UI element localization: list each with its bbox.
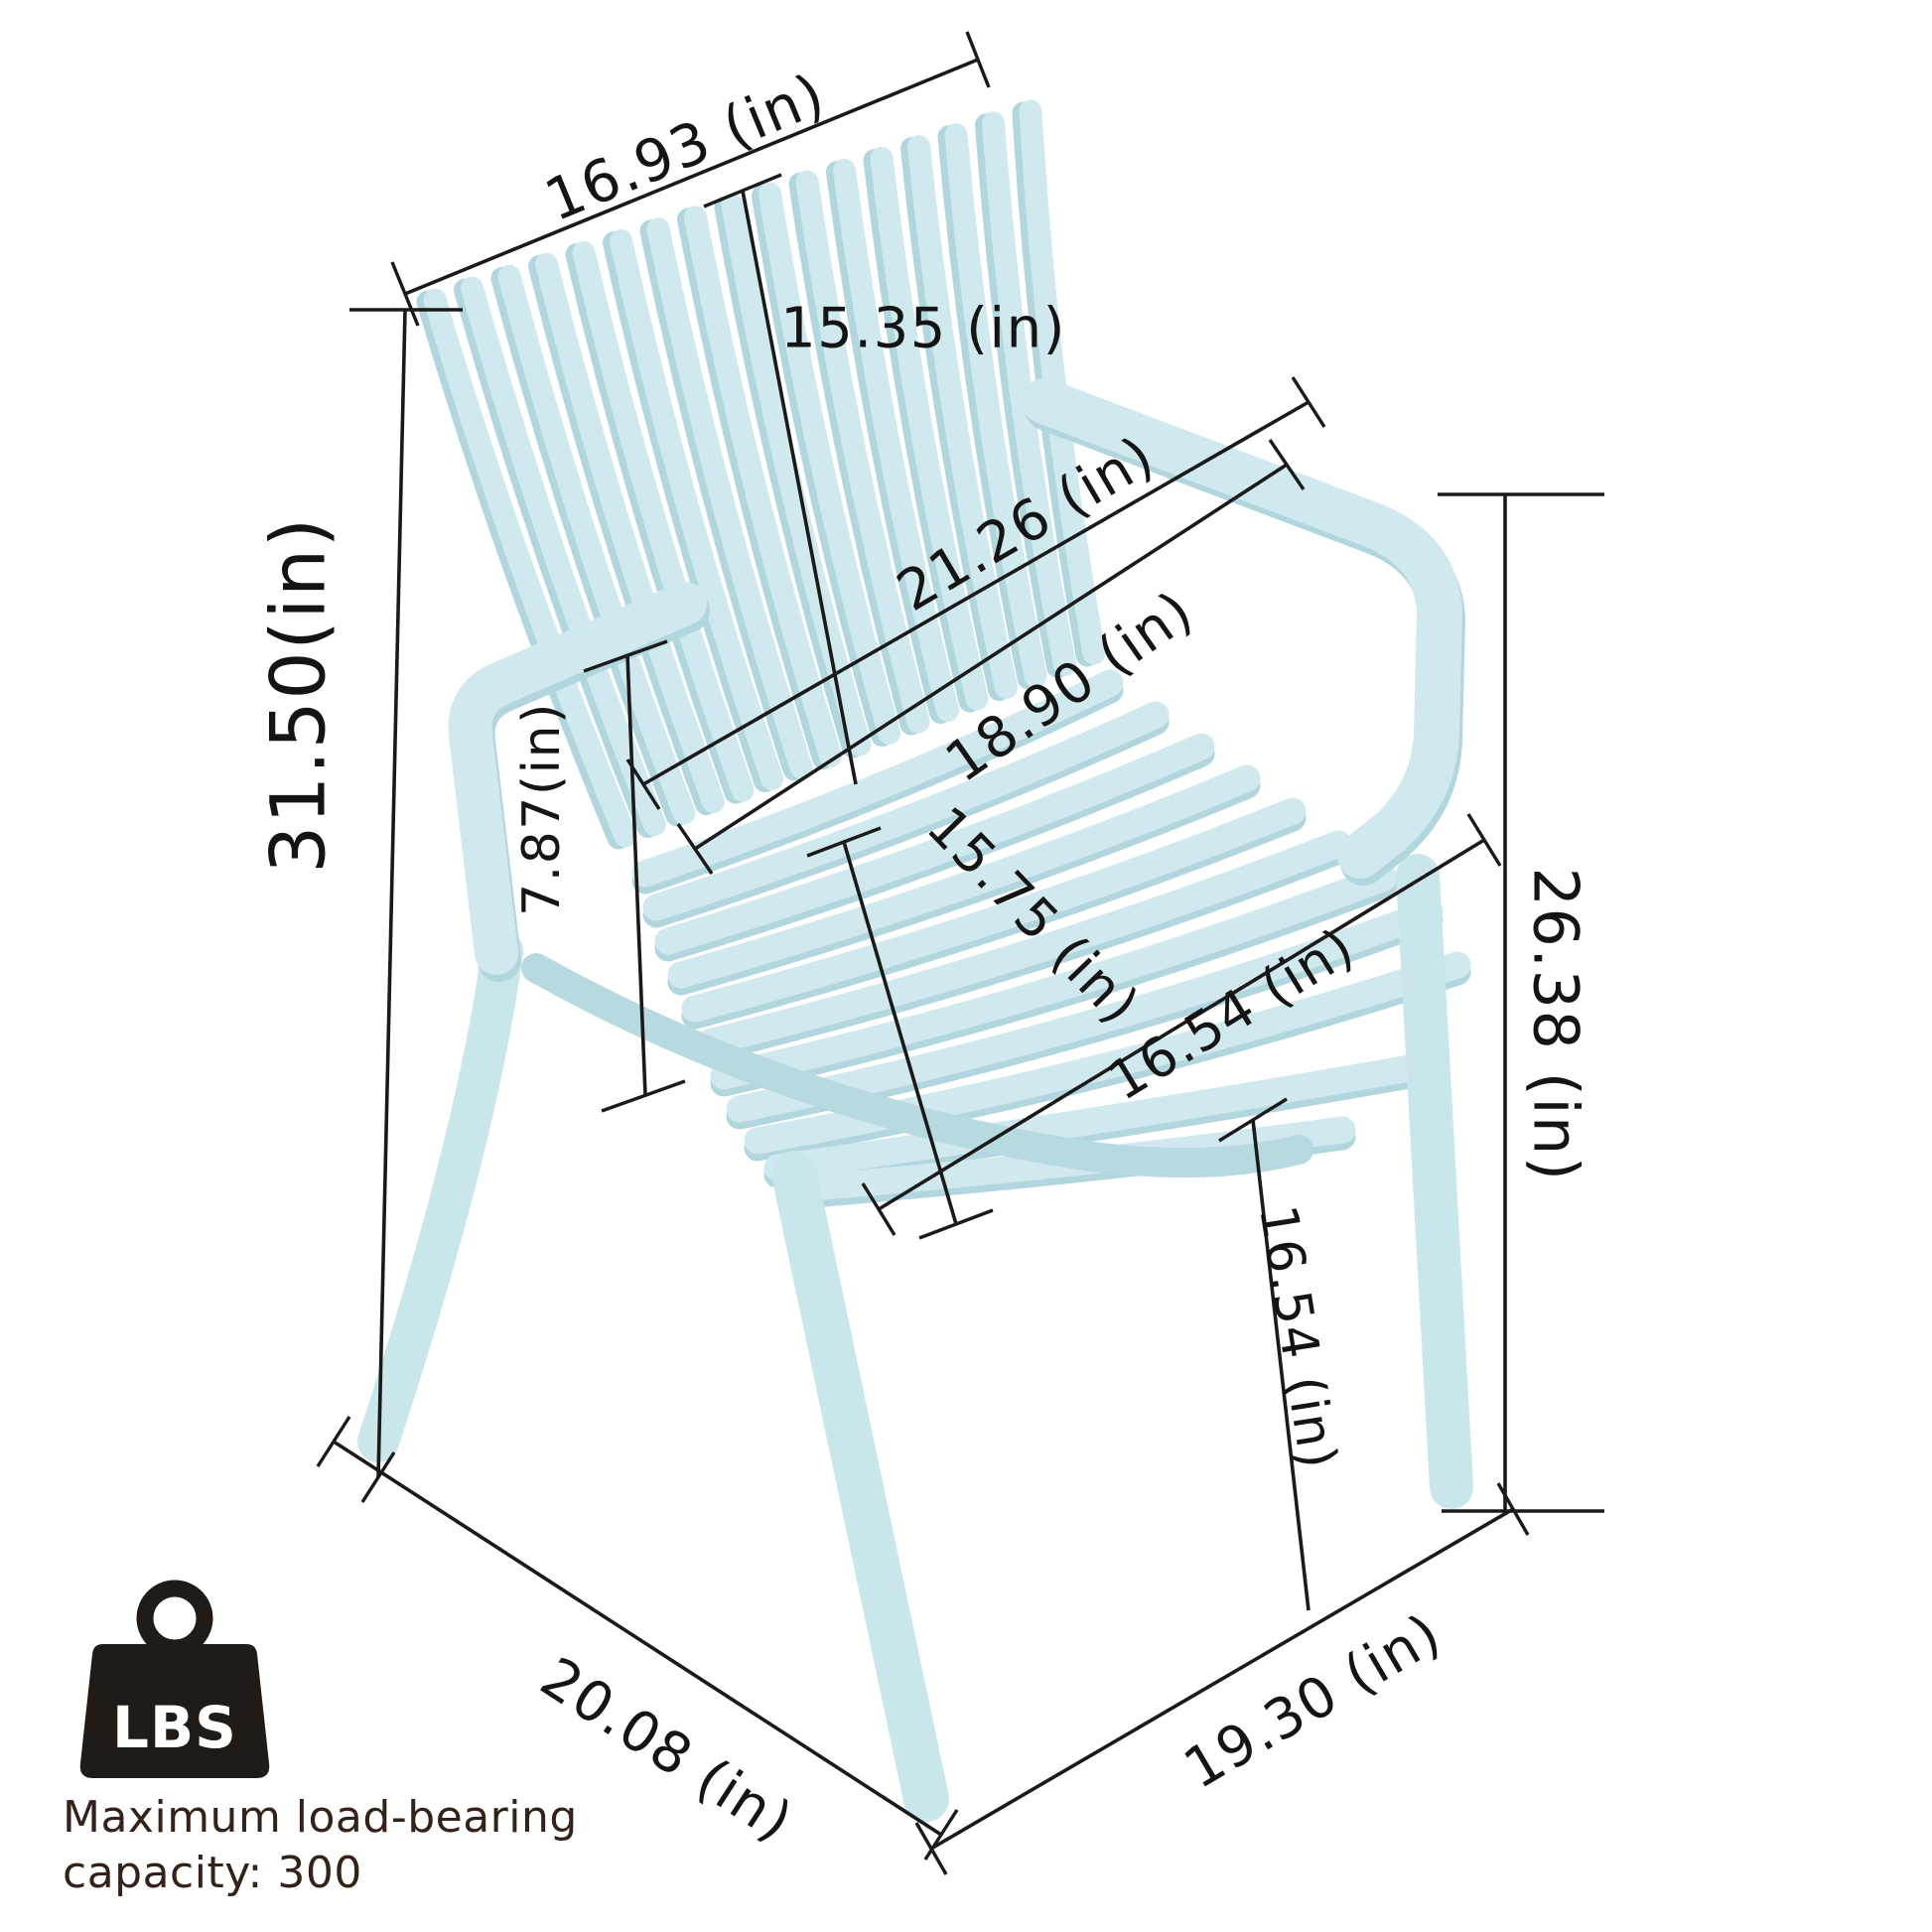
load-capacity-badge: LBS Maximum load-bearing capacity: 300 (63, 1588, 578, 1898)
dimension-tick (919, 1210, 993, 1238)
dim-label-leg-height: 16.54 (in) (1247, 1201, 1347, 1473)
back-left-leg (378, 951, 502, 1442)
dim-label-overall-height: 31.50(in) (254, 516, 343, 874)
chair-dimension-diagram: 16.93 (in) 15.35 (in) 21.26 (in) 18.90 (… (0, 0, 1932, 1932)
dimension-tick (967, 32, 989, 87)
weight-icon-label: LBS (112, 1694, 237, 1761)
weight-icon-ring (145, 1588, 205, 1648)
weight-icon: LBS (80, 1588, 269, 1778)
load-capacity-caption-line1: Maximum load-bearing (63, 1792, 578, 1843)
dimension-tick (916, 1823, 946, 1874)
front-leg (794, 1173, 926, 1799)
dimension-tick (318, 1417, 349, 1466)
dim-label-backrest-height: 15.35 (in) (780, 297, 1066, 361)
dimension-tick (1498, 1483, 1528, 1535)
dimension-line (931, 1509, 1513, 1849)
dimension-tick (1468, 814, 1500, 866)
dimension-tick (1293, 377, 1324, 427)
dim-label-backrest-top-width: 16.93 (in) (536, 60, 835, 234)
dim-label-armrest-to-seat-height: 7.87(in) (512, 702, 572, 916)
dim-label-floor-to-armrest-height: 26.38 (in) (1519, 867, 1591, 1181)
dim-label-base-width: 19.30 (in) (1173, 1601, 1452, 1802)
dimension-diagram-page: 16.93 (in) 15.35 (in) 21.26 (in) 18.90 (… (0, 0, 1932, 1932)
load-capacity-caption-line2: capacity: 300 (63, 1848, 362, 1898)
